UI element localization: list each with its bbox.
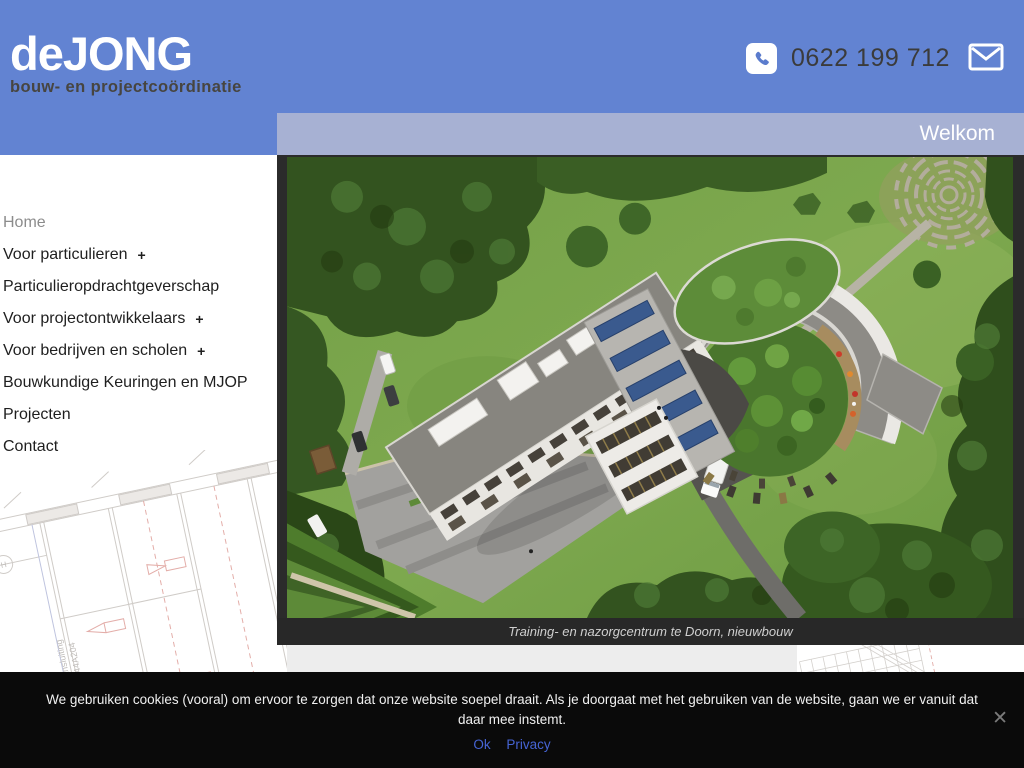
expand-plus-icon[interactable]: + (138, 247, 146, 263)
sidebar-item-voor-bedrijven-en-scholen[interactable]: Voor bedrijven en scholen+ (3, 335, 273, 367)
photo-caption: Training- en nazorgcentrum te Doorn, nie… (277, 618, 1024, 645)
svg-text:H: H (0, 560, 8, 570)
expand-plus-icon[interactable]: + (197, 343, 205, 359)
slideshow: Training- en nazorgcentrum te Doorn, nie… (277, 155, 1024, 645)
close-icon[interactable]: ✕ (992, 709, 1008, 728)
expand-plus-icon[interactable]: + (195, 311, 203, 327)
page: H voor aansluiting zie: 5544A204 deJONG … (0, 0, 1024, 768)
phone-icon[interactable] (746, 43, 777, 74)
phone-number[interactable]: 0622 199 712 (791, 44, 950, 73)
logo-subtitle: bouw- en projectcoördinatie (10, 78, 242, 97)
logo-title: deJONG (10, 30, 242, 77)
envelope-icon[interactable] (968, 42, 1004, 72)
sidebar-nav: Home Voor particulieren+ Particulieropdr… (3, 207, 273, 463)
logo: deJONG bouw- en projectcoördinatie (10, 30, 242, 97)
cookie-privacy-link[interactable]: Privacy (506, 737, 550, 752)
sidebar-item-voor-particulieren[interactable]: Voor particulieren+ (3, 239, 273, 271)
page-title: Welkom (920, 122, 995, 146)
aerial-photo (287, 157, 1013, 618)
sidebar-item-bouwkundige-keuringen[interactable]: Bouwkundige Keuringen en MJOP (3, 367, 273, 399)
sidebar-item-projecten[interactable]: Projecten (3, 399, 273, 431)
sidebar-item-contact[interactable]: Contact (3, 431, 273, 463)
cookie-ok-link[interactable]: Ok (473, 737, 490, 752)
sidebar-item-voor-projectontwikkelaars[interactable]: Voor projectontwikkelaars+ (3, 303, 273, 335)
cookie-banner: We gebruiken cookies (vooral) om ervoor … (0, 672, 1024, 768)
sidebar-item-particulieropdrachtgeverschap[interactable]: Particulieropdrachtgeverschap (3, 271, 273, 303)
cookie-message: We gebruiken cookies (vooral) om ervoor … (37, 672, 987, 730)
page-title-bar: Welkom (277, 113, 1024, 155)
sidebar-item-home[interactable]: Home (3, 207, 273, 239)
floorplan-drawing-left: H voor aansluiting zie: 5544A204 (0, 450, 312, 710)
